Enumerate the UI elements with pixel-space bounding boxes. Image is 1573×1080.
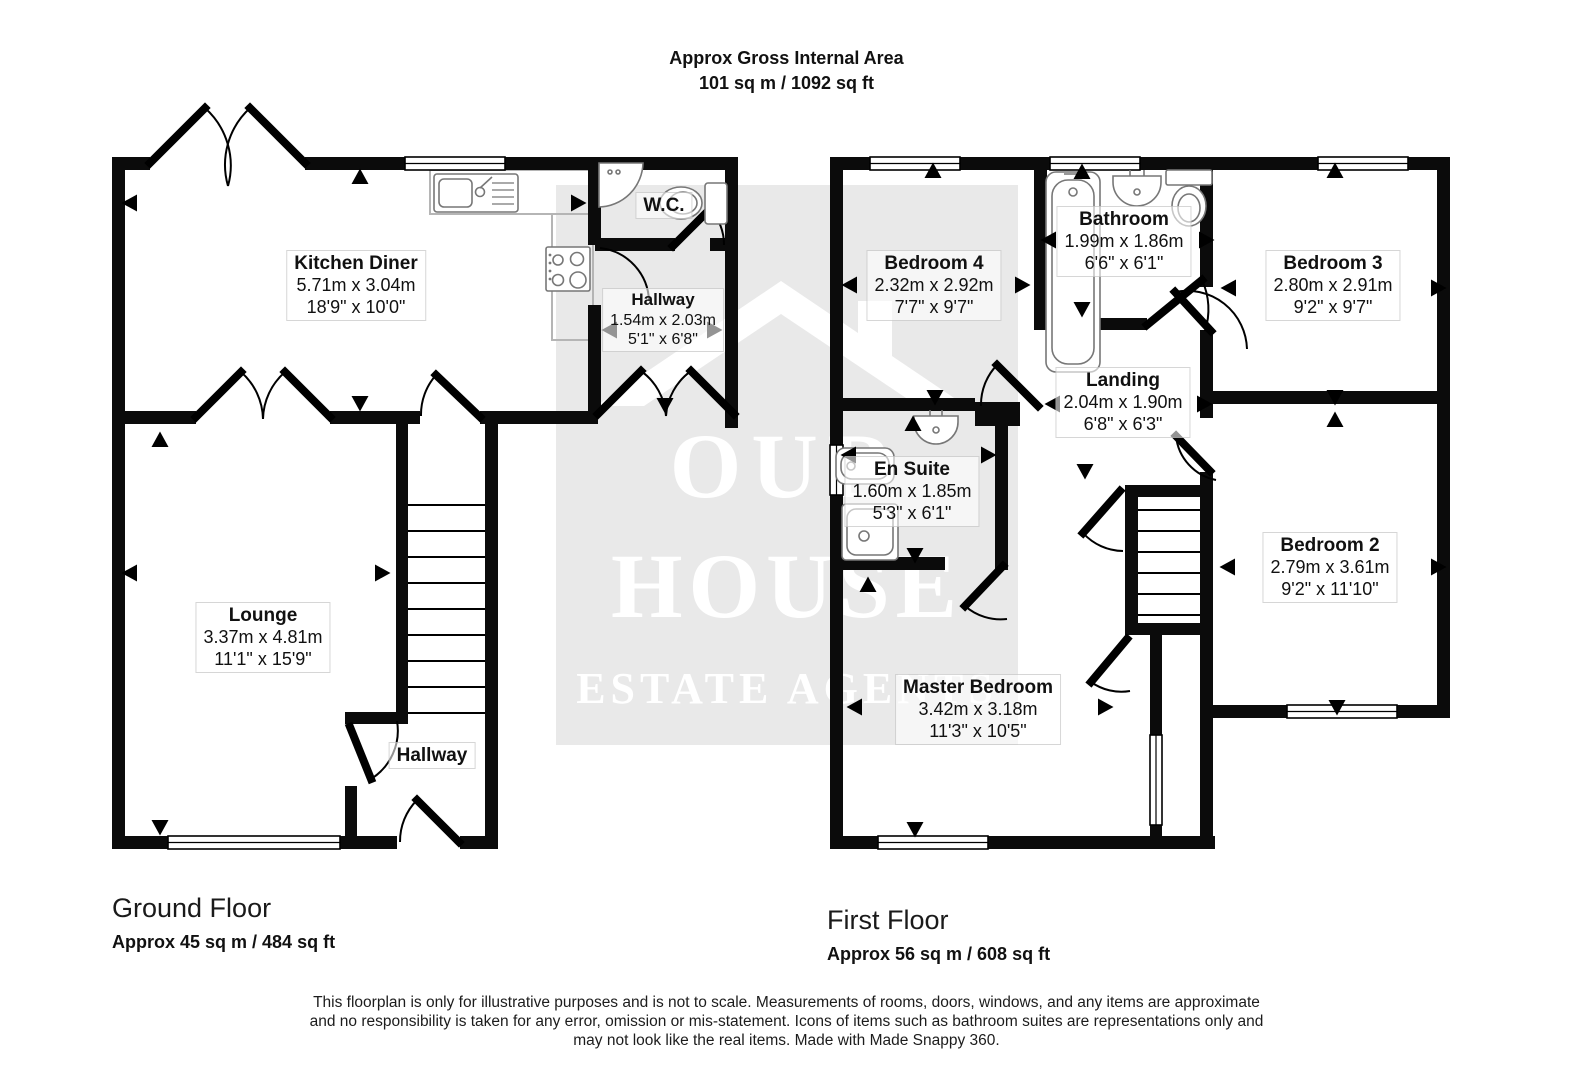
room-label-hallway-lower: Hallway: [389, 742, 476, 769]
ground-floor-title: Ground Floor: [112, 893, 335, 924]
disclaimer-line-1: This floorplan is only for illustrative …: [0, 994, 1573, 1013]
room-label-hallway-upper: Hallway 1.54m x 2.03m 5'1" x 6'8": [602, 288, 724, 352]
page-title: Approx Gross Internal Area 101 sq m / 10…: [669, 46, 903, 96]
ensuite-sink-icon: [914, 410, 958, 444]
kitchen-sink-icon: [434, 174, 518, 212]
room-label-en-suite: En Suite 1.60m x 1.85m 5'3" x 6'1": [844, 456, 979, 527]
disclaimer-line-2: and no responsibility is taken for any e…: [0, 1013, 1573, 1032]
first-floor-area: Approx 56 sq m / 608 sq ft: [827, 944, 1050, 965]
ground-floor-caption: Ground Floor Approx 45 sq m / 484 sq ft: [112, 893, 335, 953]
ground-fixtures: [434, 163, 727, 291]
first-floor-title: First Floor: [827, 905, 1050, 936]
bathroom-sink-icon: [1113, 170, 1161, 206]
room-label-bedroom-2: Bedroom 2 2.79m x 3.61m 9'2" x 11'10": [1262, 532, 1397, 603]
ground-stairs: [408, 505, 485, 713]
disclaimer: This floorplan is only for illustrative …: [0, 994, 1573, 1051]
room-label-wc: W.C.: [635, 192, 692, 219]
disclaimer-line-3: may not look like the real items. Made w…: [0, 1032, 1573, 1051]
first-stairs: [1138, 510, 1200, 615]
room-label-bedroom-3: Bedroom 3 2.80m x 2.91m 9'2" x 9'7": [1265, 250, 1400, 321]
room-label-landing: Landing 2.04m x 1.90m 6'8" x 6'3": [1055, 367, 1190, 438]
floorplan-page: OUR HOUSE ESTATE AGENTS: [0, 0, 1573, 1080]
room-label-lounge: Lounge 3.37m x 4.81m 11'1" x 15'9": [195, 602, 330, 673]
room-label-master-bedroom: Master Bedroom 3.42m x 3.18m 11'3" x 10'…: [895, 674, 1061, 745]
title-line-1: Approx Gross Internal Area: [669, 46, 903, 71]
room-label-bathroom: Bathroom 1.99m x 1.86m 6'6" x 6'1": [1056, 206, 1191, 277]
title-line-2: 101 sq m / 1092 sq ft: [669, 71, 903, 96]
room-label-kitchen-diner: Kitchen Diner 5.71m x 3.04m 18'9" x 10'0…: [286, 250, 426, 321]
first-floor-caption: First Floor Approx 56 sq m / 608 sq ft: [827, 905, 1050, 965]
ground-floor-area: Approx 45 sq m / 484 sq ft: [112, 932, 335, 953]
hob-icon: [546, 247, 590, 291]
room-label-bedroom-4: Bedroom 4 2.32m x 2.92m 7'7" x 9'7": [866, 250, 1001, 321]
